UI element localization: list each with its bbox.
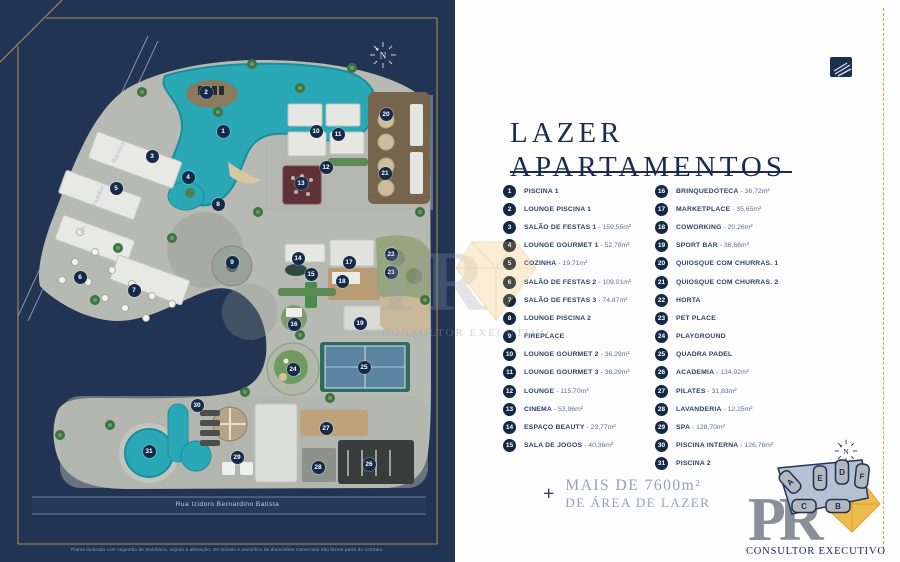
map-marker-30: 30 <box>191 399 204 412</box>
map-marker-15: 15 <box>305 268 318 281</box>
consultor-executivo-logo: PR ABCDEF CONSULTOR EXECUTIVO <box>742 452 892 558</box>
map-marker-17: 17 <box>343 256 356 269</box>
legend-area-value: - 12,25m² <box>722 406 753 413</box>
svg-text:C: C <box>801 502 807 511</box>
legend-label: PET PLACE <box>676 315 716 322</box>
map-marker-3: 3 <box>146 150 159 163</box>
legend-number-badge: 3 <box>503 221 516 234</box>
map-marker-4: 4 <box>182 171 195 184</box>
legend-column-right: 16BRINQUEDOTECA - 36,72m²17MARKETPLACE -… <box>655 182 855 473</box>
brochure-page: N Av. Governador Celso Ramos Rua Izidoro… <box>0 0 900 562</box>
map-marker-25: 25 <box>358 361 371 374</box>
map-marker-26: 26 <box>363 458 376 471</box>
leisure-area-callout: + MAIS DE 7600m² DE ÁREA DE LAZER <box>543 477 710 511</box>
legend-number-badge: 10 <box>503 348 516 361</box>
legend-number-badge: 7 <box>503 294 516 307</box>
legend-area-value: - 52,78m² <box>599 242 630 249</box>
compass-north-icon: N <box>368 40 398 70</box>
plus-sign: + <box>543 484 554 504</box>
legend-label: SALÃO DE FESTAS 3 <box>524 297 596 304</box>
legend-number-badge: 13 <box>503 403 516 416</box>
legend-label: LOUNGE PISCINA 1 <box>524 206 591 213</box>
legend-item-14: 14ESPAÇO BEAUTY - 23,77m² <box>503 418 655 436</box>
legend-item-16: 16BRINQUEDOTECA - 36,72m² <box>655 182 855 200</box>
legend-area-value: - 126,76m² <box>738 442 773 449</box>
legend-item-12: 12LOUNGE - 115,70m² <box>503 382 655 400</box>
legend-area-value: - 36,72m² <box>739 188 770 195</box>
map-marker-16: 16 <box>288 318 301 331</box>
map-marker-6: 6 <box>74 271 87 284</box>
legend-area-value: - 109,01m² <box>596 279 631 286</box>
legend-area-value: - 53,96m² <box>552 406 583 413</box>
legend-item-23: 23PET PLACE <box>655 309 855 327</box>
map-marker-2: 2 <box>200 86 213 99</box>
legend-label: COWORKING <box>676 224 722 231</box>
legend-item-4: 4LOUNGE GOURMET 1 - 52,78m² <box>503 237 655 255</box>
legend-number-badge: 24 <box>655 330 668 343</box>
legend-item-17: 17MARKETPLACE - 35,65m² <box>655 200 855 218</box>
map-marker-23: 23 <box>385 266 398 279</box>
legend-area-value: - 134,92m² <box>714 369 749 376</box>
legend-area-value: - 19,71m² <box>556 260 587 267</box>
legend-item-24: 24PLAYGROUND <box>655 328 855 346</box>
legend-number-badge: 31 <box>655 457 668 470</box>
legend-item-25: 25QUADRA PADEL <box>655 346 855 364</box>
map-marker-22: 22 <box>385 248 398 261</box>
bottom-street-label: Rua Izidoro Bernardino Batista <box>0 501 455 508</box>
title-line-1: LAZER <box>510 117 786 151</box>
site-plan-panel: N Av. Governador Celso Ramos Rua Izidoro… <box>0 0 455 562</box>
legend-label: HORTA <box>676 297 701 304</box>
legend-area-value: - 20,26m² <box>722 224 753 231</box>
legend-number-badge: 17 <box>655 203 668 216</box>
legend-number-badge: 22 <box>655 294 668 307</box>
legend-item-10: 10LOUNGE GOURMET 2 - 36,29m² <box>503 346 655 364</box>
legend-number-badge: 15 <box>503 439 516 452</box>
legend-number-badge: 21 <box>655 276 668 289</box>
legend-number-badge: 6 <box>503 276 516 289</box>
legend-label: MARKETPLACE <box>676 206 730 213</box>
legal-disclaimer: Planta ilustrada com sugestão de mobiliá… <box>0 547 455 552</box>
map-marker-21: 21 <box>379 167 392 180</box>
legend-label: ACADEMIA <box>676 369 714 376</box>
legend-label: BRINQUEDOTECA <box>676 188 739 195</box>
legend-area-value: - 31,83m² <box>706 388 737 395</box>
map-marker-9: 9 <box>226 256 239 269</box>
legend-label: LOUNGE GOURMET 3 <box>524 369 599 376</box>
map-marker-1: 1 <box>217 125 230 138</box>
legend-label: SALÃO DE FESTAS 1 <box>524 224 596 231</box>
map-marker-24: 24 <box>287 363 300 376</box>
legend-number-badge: 28 <box>655 403 668 416</box>
map-marker-29: 29 <box>231 451 244 464</box>
legend-item-5: 5COZINHA - 19,71m² <box>503 255 655 273</box>
map-marker-14: 14 <box>292 252 305 265</box>
hedge <box>328 158 368 166</box>
legend-label: SALA DE JOGOS <box>524 442 582 449</box>
legend-label: QUIOSQUE COM CHURRAS. 2 <box>676 279 778 286</box>
legend-item-20: 20QUIOSQUE COM CHURRAS. 1 <box>655 255 855 273</box>
legend-number-badge: 2 <box>503 203 516 216</box>
legend-item-3: 3SALÃO DE FESTAS 1 - 159,55m² <box>503 218 655 236</box>
legend-item-18: 18COWORKING - 20,26m² <box>655 218 855 236</box>
map-marker-10: 10 <box>310 125 323 138</box>
map-marker-5: 5 <box>110 182 123 195</box>
legend-number-badge: 1 <box>503 185 516 198</box>
legend-item-21: 21QUIOSQUE COM CHURRAS. 2 <box>655 273 855 291</box>
legend-label: QUADRA PADEL <box>676 351 732 358</box>
map-marker-11: 11 <box>332 128 345 141</box>
games-table <box>285 264 307 276</box>
legend-panel: LAZER APARTAMENTOS 1PISCINA 12LOUNGE PIS… <box>455 0 900 562</box>
legend-item-9: 9FIREPLACE <box>503 328 655 346</box>
legend-label: COZINHA <box>524 260 556 267</box>
legend-area-value: - 35,65m² <box>730 206 761 213</box>
legend-number-badge: 26 <box>655 366 668 379</box>
legend-number-badge: 20 <box>655 257 668 270</box>
legend-label: PISCINA 2 <box>676 460 711 467</box>
laundry-building <box>255 404 297 482</box>
legend-number-badge: 27 <box>655 385 668 398</box>
legend-item-2: 2LOUNGE PISCINA 1 <box>503 200 655 218</box>
legend-label: LOUNGE <box>524 388 554 395</box>
legend-label: SALÃO DE FESTAS 2 <box>524 279 596 286</box>
map-marker-20: 20 <box>380 108 393 121</box>
legend-number-badge: 14 <box>503 421 516 434</box>
brand-mark-icon <box>830 57 852 77</box>
tower-chip-C: C <box>792 500 816 513</box>
legend-label: CINEMA <box>524 406 552 413</box>
callout-line-1: MAIS DE 7600m² <box>565 477 710 495</box>
legend-label: SPA <box>676 424 690 431</box>
legend-item-19: 19SPORT BAR - 36,66m² <box>655 237 855 255</box>
map-marker-28: 28 <box>312 461 325 474</box>
legend-area-value: - 40,36m² <box>582 442 613 449</box>
svg-text:B: B <box>835 502 841 511</box>
legend-label: PISCINA 1 <box>524 188 559 195</box>
legend-area-value: - 74,87m² <box>596 297 627 304</box>
title-line-2: APARTAMENTOS <box>510 151 786 185</box>
svg-text:D: D <box>839 468 845 477</box>
legend-item-13: 13CINEMA - 53,96m² <box>503 400 655 418</box>
legend-item-8: 8LOUNGE PISCINA 2 <box>503 309 655 327</box>
legend-area-value: - 115,70m² <box>554 388 588 395</box>
legend-area-value: - 23,77m² <box>585 424 616 431</box>
legend-number-badge: 4 <box>503 239 516 252</box>
legend-area-value: - 159,55m² <box>596 224 631 231</box>
legend-item-1: 1PISCINA 1 <box>503 182 655 200</box>
legend-number-badge: 11 <box>503 366 516 379</box>
legend-column-left: 1PISCINA 12LOUNGE PISCINA 13SALÃO DE FES… <box>503 182 655 473</box>
legend-label: ESPAÇO BEAUTY <box>524 424 585 431</box>
legend-label: LAVANDERIA <box>676 406 722 413</box>
tower-chip-D: D <box>836 460 849 484</box>
map-marker-8: 8 <box>212 198 225 211</box>
site-plan-illustration <box>0 0 455 562</box>
legend-label: QUIOSQUE COM CHURRAS. 1 <box>676 260 778 267</box>
legend-number-badge: 8 <box>503 312 516 325</box>
svg-text:E: E <box>817 474 823 483</box>
legend-label: PILATES <box>676 388 706 395</box>
map-marker-31: 31 <box>143 445 156 458</box>
map-marker-7: 7 <box>128 284 141 297</box>
legend-item-22: 22HORTA <box>655 291 855 309</box>
legend-area-value: - 36,29m² <box>599 369 630 376</box>
legend-number-badge: 16 <box>655 185 668 198</box>
legend-number-badge: 19 <box>655 239 668 252</box>
tower-chip-B: B <box>826 500 850 513</box>
legend-label: LOUNGE GOURMET 1 <box>524 242 599 249</box>
legend-number-badge: 12 <box>503 385 516 398</box>
legend-number-badge: 18 <box>655 221 668 234</box>
legend-label: PLAYGROUND <box>676 333 726 340</box>
map-marker-12: 12 <box>320 161 333 174</box>
legend-number-badge: 5 <box>503 257 516 270</box>
map-marker-13: 13 <box>295 177 308 190</box>
garden-horta <box>376 235 430 302</box>
legend-columns: 1PISCINA 12LOUNGE PISCINA 13SALÃO DE FES… <box>503 182 855 473</box>
legend-area-value: - 128,70m² <box>690 424 725 431</box>
legend-item-26: 26ACADEMIA - 134,92m² <box>655 364 855 382</box>
legend-item-28: 28LAVANDERIA - 12,25m² <box>655 400 855 418</box>
legend-label: LOUNGE GOURMET 2 <box>524 351 599 358</box>
legend-number-badge: 23 <box>655 312 668 325</box>
legend-number-badge: 29 <box>655 421 668 434</box>
pilates-area <box>300 410 368 436</box>
legend-number-badge: 9 <box>503 330 516 343</box>
tower-chip-E: E <box>814 466 827 490</box>
legend-item-27: 27PILATES - 31,83m² <box>655 382 855 400</box>
legend-item-15: 15SALA DE JOGOS - 40,36m² <box>503 437 655 455</box>
title-divider <box>510 171 792 173</box>
map-marker-18: 18 <box>336 275 349 288</box>
legend-area-value: - 36,66m² <box>718 242 749 249</box>
spa-beds <box>222 462 235 475</box>
tower-chip-F: F <box>854 463 869 488</box>
legend-item-29: 29SPA - 128,70m² <box>655 418 855 436</box>
legend-number-badge: 25 <box>655 348 668 361</box>
legend-label: SPORT BAR <box>676 242 718 249</box>
map-marker-27: 27 <box>320 422 333 435</box>
legend-item-6: 6SALÃO DE FESTAS 2 - 109,01m² <box>503 273 655 291</box>
legend-area-value: - 36,29m² <box>599 351 630 358</box>
legend-item-11: 11LOUNGE GOURMET 3 - 36,29m² <box>503 364 655 382</box>
map-marker-19: 19 <box>354 317 367 330</box>
svg-text:N: N <box>380 51 387 61</box>
beauty-space <box>285 244 325 262</box>
legend-label: FIREPLACE <box>524 333 564 340</box>
legend-label: PISCINA INTERNA <box>676 442 738 449</box>
page-title: LAZER APARTAMENTOS <box>510 117 786 184</box>
brand-name: CONSULTOR EXECUTIVO <box>746 546 886 557</box>
legend-item-7: 7SALÃO DE FESTAS 3 - 74,87m² <box>503 291 655 309</box>
callout-line-2: DE ÁREA DE LAZER <box>565 495 710 511</box>
legend-number-badge: 30 <box>655 439 668 452</box>
legend-label: LOUNGE PISCINA 2 <box>524 315 591 322</box>
